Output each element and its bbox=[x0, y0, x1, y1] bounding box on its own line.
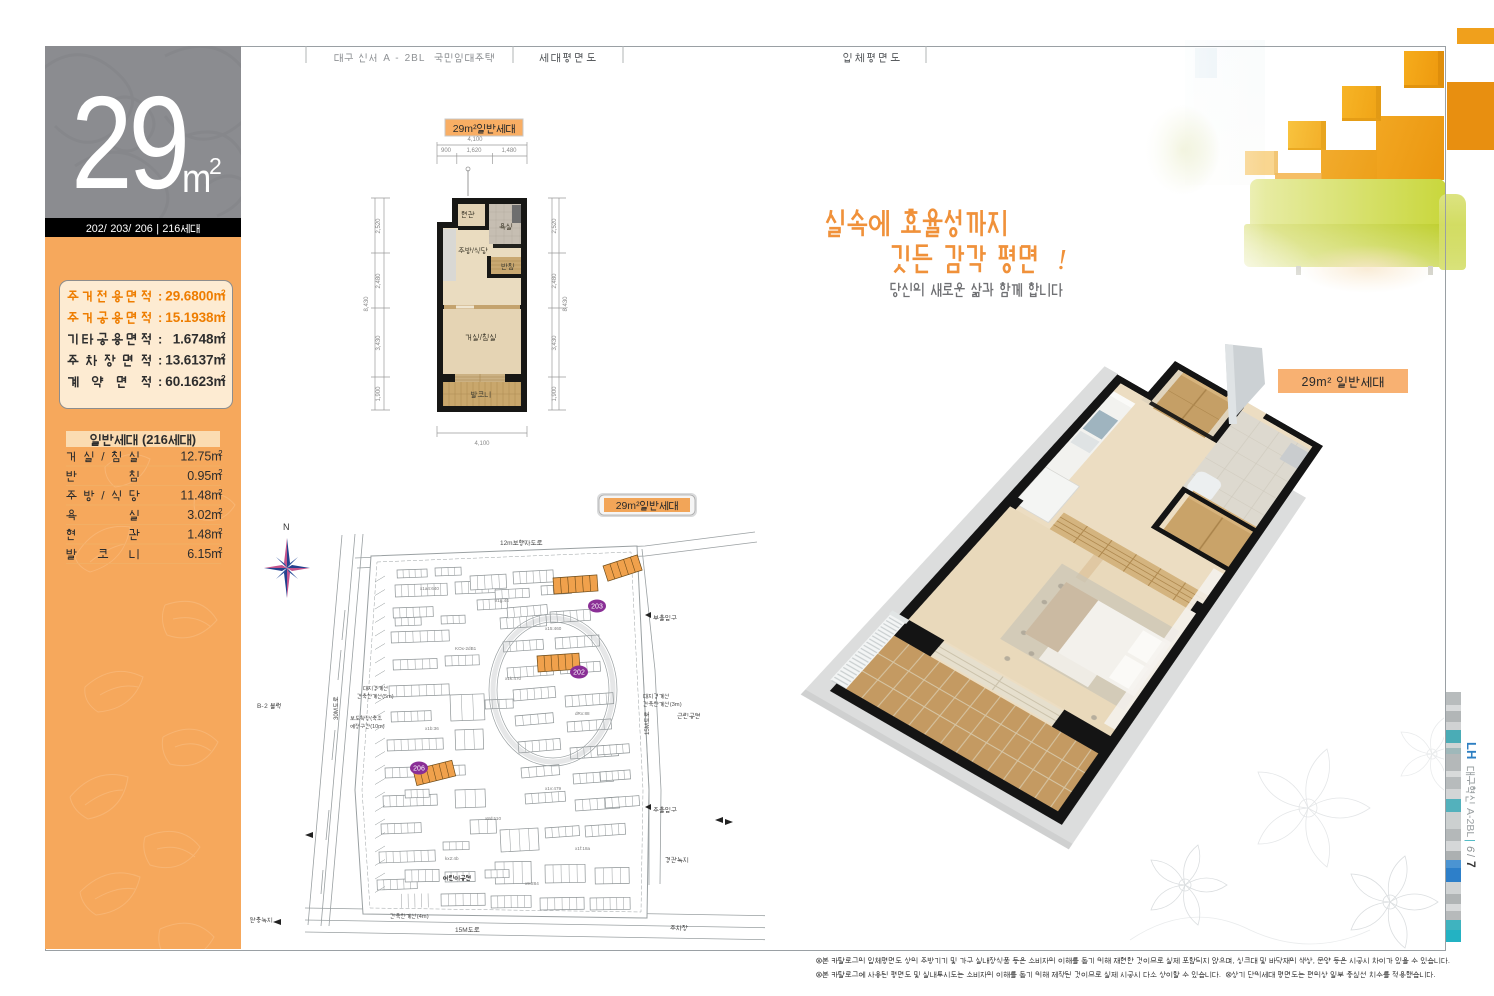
svg-text:202: 202 bbox=[573, 670, 585, 677]
svg-text::: : bbox=[158, 374, 162, 389]
svg-text:M: M bbox=[462, 927, 467, 934]
svg-text:x1g:44: x1g:44 bbox=[495, 598, 509, 603]
svg-text:1,620: 1,620 bbox=[466, 148, 482, 154]
svg-text:2: 2 bbox=[221, 352, 226, 362]
svg-text:2: 2 bbox=[218, 468, 222, 477]
svg-text:x1k:470: x1k:470 bbox=[505, 676, 522, 681]
svg-text:²: ² bbox=[473, 123, 477, 135]
svg-text:2: 2 bbox=[264, 703, 268, 710]
svg-text:2: 2 bbox=[1302, 375, 1309, 389]
svg-text:8,430: 8,430 bbox=[563, 296, 569, 312]
svg-text:x15:460: x15:460 bbox=[545, 626, 562, 631]
svg-text:x1a4:640: x1a4:640 bbox=[420, 586, 439, 591]
svg-text:kx2:4b: kx2:4b bbox=[445, 856, 459, 861]
svg-text:,: , bbox=[1233, 956, 1235, 965]
svg-text:2: 2 bbox=[218, 488, 222, 497]
svg-text:4,100: 4,100 bbox=[474, 441, 490, 447]
svg-text:0: 0 bbox=[173, 374, 181, 389]
svg-text:B: B bbox=[411, 53, 418, 64]
svg-text:2: 2 bbox=[221, 309, 226, 319]
svg-text:M: M bbox=[333, 708, 340, 713]
svg-text:KOx-2dB1: KOx-2dB1 bbox=[455, 646, 477, 651]
svg-text:!: ! bbox=[1057, 244, 1067, 276]
svg-text:/: / bbox=[101, 489, 105, 503]
svg-text:900: 900 bbox=[441, 148, 452, 154]
svg-text:m: m bbox=[627, 500, 636, 512]
svg-text:/: / bbox=[101, 450, 105, 464]
svg-text:9: 9 bbox=[1309, 375, 1316, 389]
svg-text::: : bbox=[158, 289, 162, 304]
svg-text:.: . bbox=[1448, 956, 1450, 965]
svg-text:): ) bbox=[680, 702, 682, 708]
svg-text::: : bbox=[158, 353, 162, 368]
svg-text::: : bbox=[158, 331, 162, 346]
svg-text:.: . bbox=[1433, 970, 1435, 979]
svg-text:x1b:36: x1b:36 bbox=[425, 726, 439, 731]
svg-text:x1f:18a: x1f:18a bbox=[575, 846, 591, 851]
svg-text:2: 2 bbox=[221, 330, 226, 340]
svg-text:2: 2 bbox=[218, 449, 222, 458]
svg-text:1,480: 1,480 bbox=[501, 148, 517, 154]
svg-text:2: 2 bbox=[146, 432, 153, 447]
svg-text:/: / bbox=[104, 223, 107, 235]
svg-text:): ) bbox=[192, 432, 196, 447]
svg-text:dRx:88: dRx:88 bbox=[575, 711, 590, 716]
svg-text:²: ² bbox=[636, 500, 640, 512]
svg-text:4,100: 4,100 bbox=[467, 137, 483, 143]
svg-text:3,430: 3,430 bbox=[552, 335, 558, 351]
svg-text:2,520: 2,520 bbox=[552, 218, 558, 234]
svg-text:/: / bbox=[1464, 854, 1476, 858]
svg-text:2: 2 bbox=[218, 546, 222, 555]
svg-text:N: N bbox=[283, 522, 290, 532]
svg-text:9: 9 bbox=[173, 289, 181, 304]
svg-text:m: m bbox=[182, 156, 211, 201]
svg-text:2: 2 bbox=[221, 373, 226, 383]
svg-text:LH: LH bbox=[1464, 742, 1479, 759]
svg-text:(: ( bbox=[370, 716, 372, 722]
svg-text:): ) bbox=[392, 694, 394, 700]
svg-text:1,900: 1,900 bbox=[552, 386, 558, 402]
svg-text:m: m bbox=[1316, 375, 1326, 389]
svg-text:6: 6 bbox=[147, 223, 153, 235]
svg-text:2: 2 bbox=[221, 287, 226, 297]
svg-text:|: | bbox=[1464, 839, 1476, 842]
svg-text:2: 2 bbox=[218, 527, 222, 536]
svg-text:.: . bbox=[1219, 970, 1221, 979]
svg-text:²: ² bbox=[1327, 375, 1331, 389]
svg-text:3,430: 3,430 bbox=[376, 335, 382, 351]
svg-text:7: 7 bbox=[191, 331, 199, 346]
svg-text:x1v:479: x1v:479 bbox=[545, 786, 562, 791]
svg-text:2: 2 bbox=[165, 289, 173, 304]
svg-text:6: 6 bbox=[161, 432, 168, 447]
svg-text:0: 0 bbox=[199, 289, 207, 304]
svg-text:L: L bbox=[419, 53, 425, 64]
svg-text:203: 203 bbox=[591, 604, 603, 611]
svg-text:2,480: 2,480 bbox=[376, 273, 382, 289]
svg-text:m: m bbox=[507, 540, 512, 547]
svg-text:|: | bbox=[156, 223, 159, 235]
svg-text:2: 2 bbox=[199, 374, 207, 389]
svg-text:2,520: 2,520 bbox=[376, 218, 382, 234]
svg-text:8,430: 8,430 bbox=[364, 296, 370, 312]
svg-text:206: 206 bbox=[413, 766, 425, 773]
svg-text:2,480: 2,480 bbox=[552, 273, 558, 289]
svg-text:2: 2 bbox=[218, 507, 222, 516]
svg-text:6: 6 bbox=[1464, 846, 1476, 853]
svg-text::: : bbox=[158, 310, 162, 325]
svg-text:0: 0 bbox=[206, 289, 214, 304]
svg-text:A-2BL: A-2BL bbox=[1464, 808, 1476, 837]
svg-text:/: / bbox=[128, 223, 131, 235]
svg-text:2: 2 bbox=[405, 53, 411, 64]
svg-text:6: 6 bbox=[174, 223, 180, 235]
svg-text:9: 9 bbox=[191, 310, 199, 325]
svg-text:1,900: 1,900 bbox=[376, 386, 382, 402]
svg-text:): ) bbox=[383, 724, 385, 730]
svg-text:x9:284: x9:284 bbox=[525, 881, 539, 886]
svg-text:m: m bbox=[464, 123, 473, 135]
svg-text:A: A bbox=[383, 53, 390, 64]
svg-text:-: - bbox=[395, 53, 398, 64]
svg-text:7: 7 bbox=[206, 353, 214, 368]
svg-text:7: 7 bbox=[1464, 861, 1478, 868]
svg-text:2: 2 bbox=[209, 153, 222, 179]
svg-text:,: , bbox=[1313, 956, 1315, 965]
svg-text:): ) bbox=[427, 914, 429, 920]
svg-text:M: M bbox=[644, 723, 651, 728]
svg-text:x8d:110: x8d:110 bbox=[485, 816, 501, 821]
